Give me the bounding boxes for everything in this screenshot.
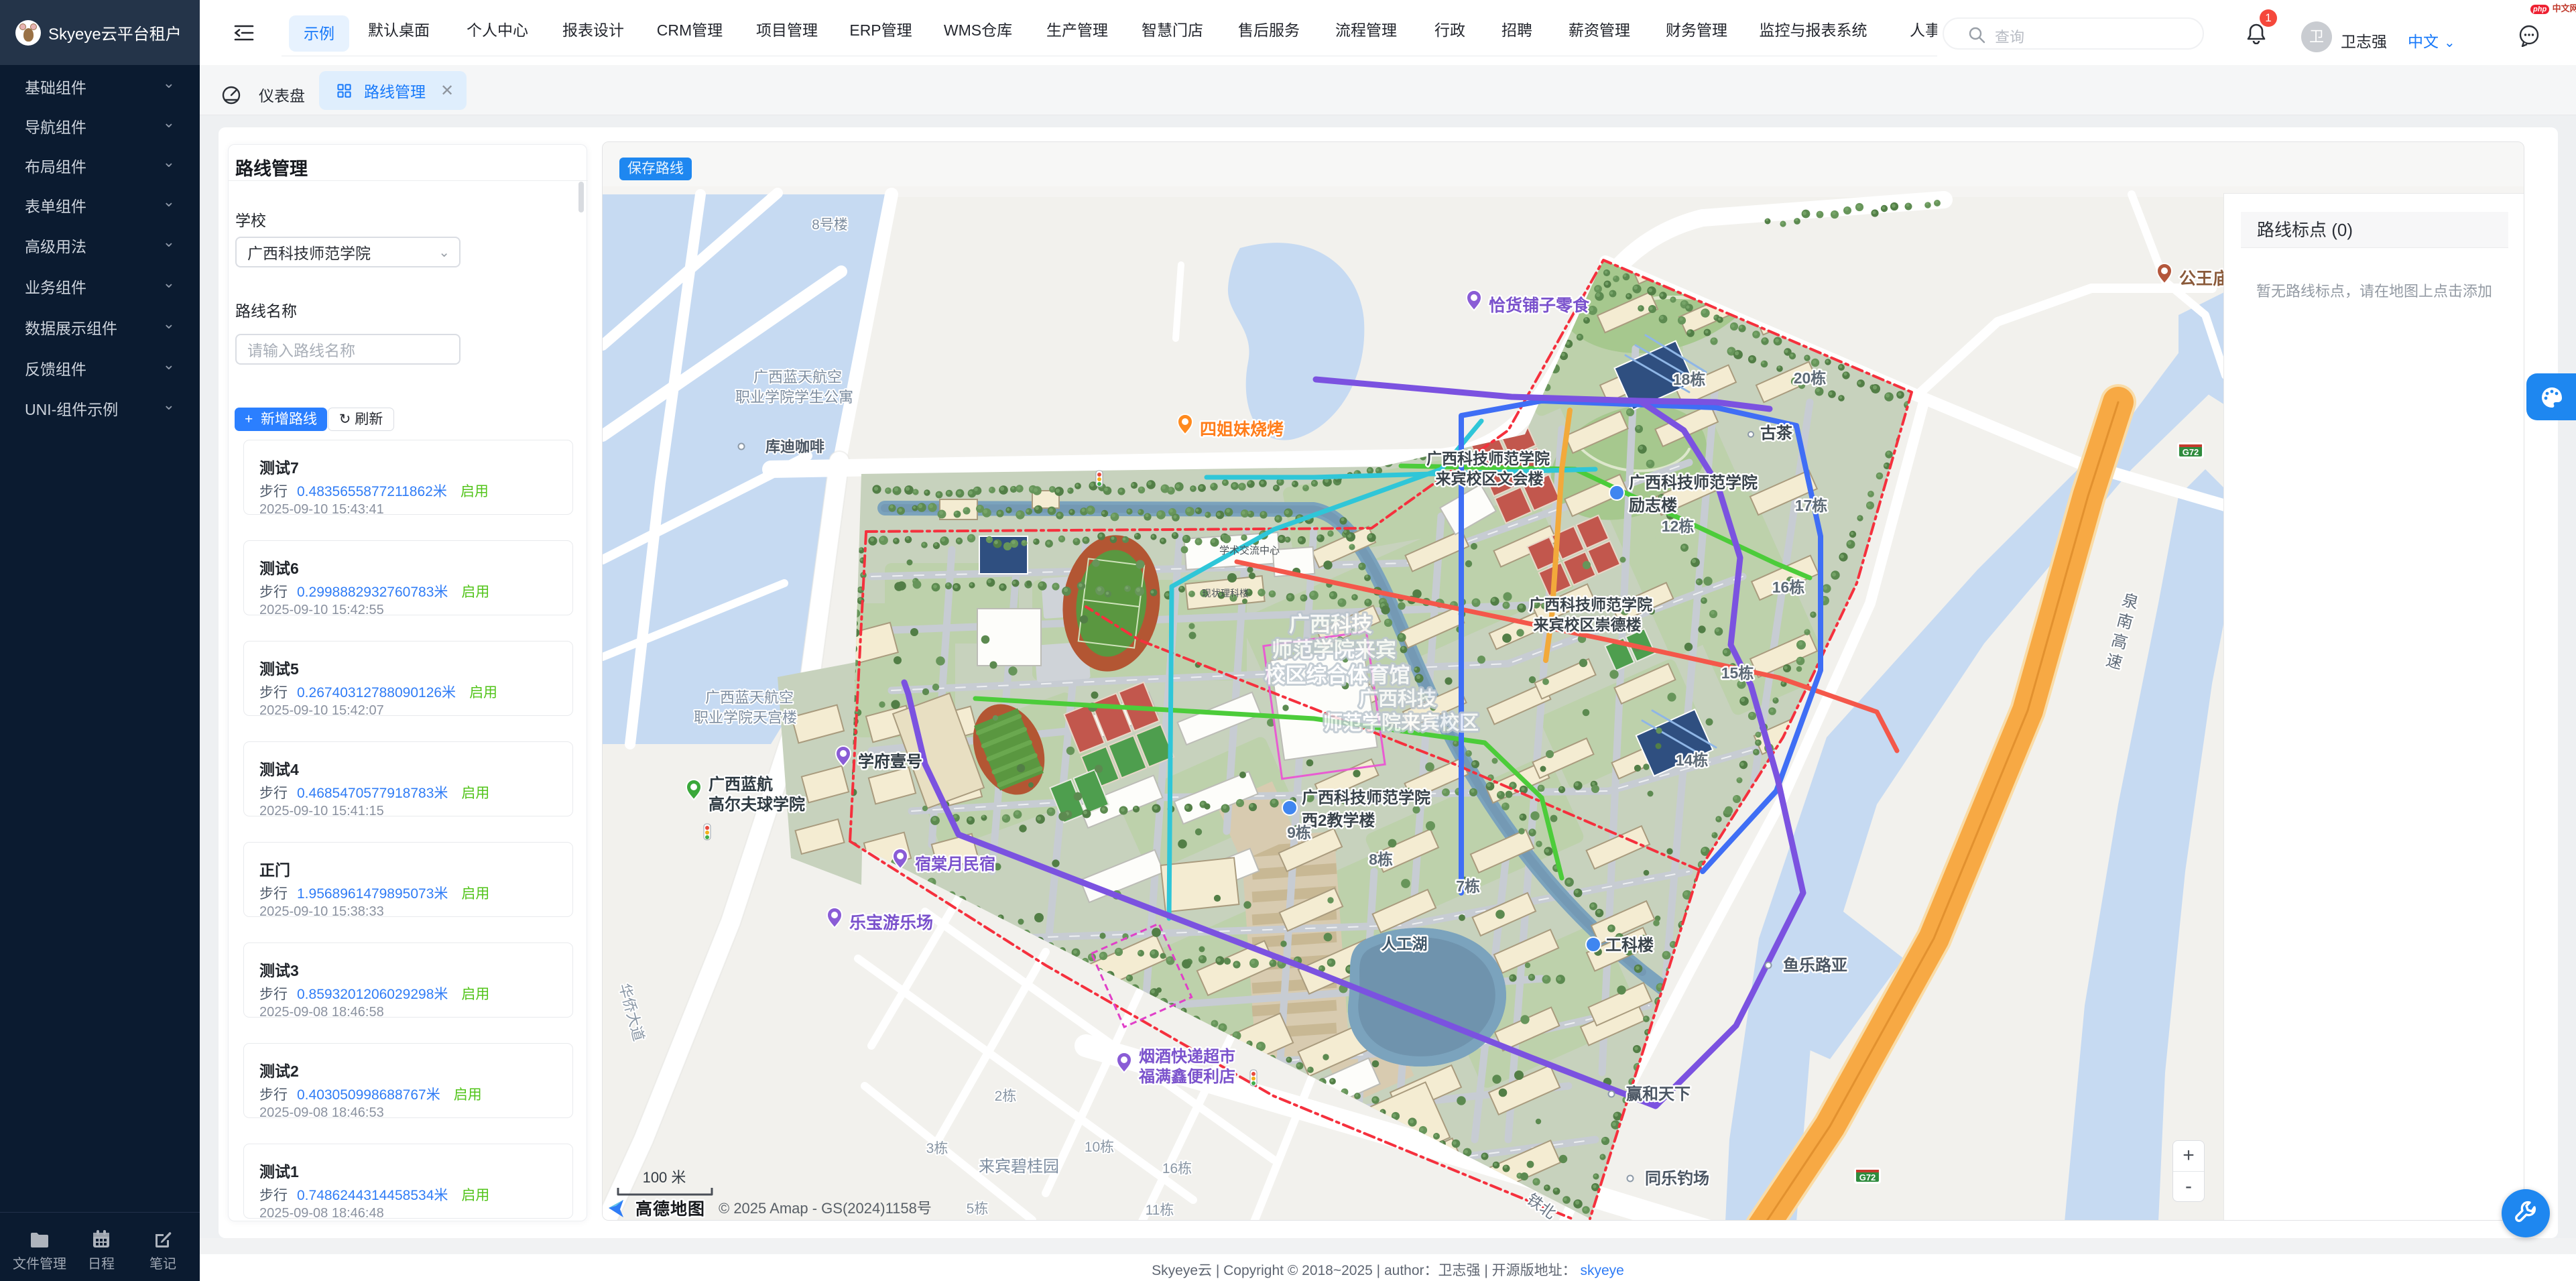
svg-text:广西科技师范学院: 广西科技师范学院: [1302, 788, 1430, 807]
svg-text:鱼乐路亚: 鱼乐路亚: [1783, 956, 1847, 975]
svg-text:2栋: 2栋: [995, 1089, 1017, 1104]
svg-text:学府壹号: 学府壹号: [858, 752, 922, 771]
svg-text:16栋: 16栋: [1162, 1161, 1192, 1176]
svg-text:15栋: 15栋: [1721, 664, 1754, 682]
svg-text:G72: G72: [1859, 1172, 1876, 1182]
svg-text:广西科技: 广西科技: [1359, 688, 1436, 710]
svg-text:9栋: 9栋: [1287, 824, 1311, 841]
svg-text:14栋: 14栋: [1676, 751, 1709, 769]
svg-text:10栋: 10栋: [1085, 1140, 1114, 1155]
svg-text:来宾碧桂园: 来宾碧桂园: [979, 1158, 1059, 1176]
svg-text:西2教学楼: 西2教学楼: [1302, 811, 1375, 830]
svg-text:7栋: 7栋: [1456, 877, 1480, 895]
svg-text:12栋: 12栋: [1662, 517, 1695, 535]
svg-text:烟酒快递超市: 烟酒快递超市: [1139, 1047, 1235, 1066]
svg-text:宿棠月民宿: 宿棠月民宿: [915, 855, 995, 873]
svg-text:师范学院来宾校区: 师范学院来宾校区: [1323, 711, 1479, 734]
svg-text:来宾校区文会楼: 来宾校区文会楼: [1436, 470, 1544, 487]
svg-text:20栋: 20栋: [1794, 369, 1827, 387]
svg-text:来宾校区崇德楼: 来宾校区崇德楼: [1534, 616, 1642, 633]
svg-text:8栋: 8栋: [1369, 851, 1393, 868]
svg-text:工科楼: 工科楼: [1605, 936, 1654, 955]
svg-text:库迪咖啡: 库迪咖啡: [765, 438, 824, 455]
svg-text:广西蓝航: 广西蓝航: [709, 775, 773, 794]
svg-text:5栋: 5栋: [967, 1201, 989, 1217]
svg-text:© 2025 Amap - GS(2024)1158号: © 2025 Amap - GS(2024)1158号: [719, 1200, 932, 1217]
svg-text:恰货铺子零食: 恰货铺子零食: [1489, 296, 1590, 315]
svg-text:高德地图: 高德地图: [635, 1199, 705, 1219]
svg-text:励志楼: 励志楼: [1629, 497, 1677, 515]
svg-text:广西科技: 广西科技: [1289, 613, 1372, 636]
svg-text:赢和天下: 赢和天下: [1626, 1085, 1691, 1103]
svg-text:高尔夫球学院: 高尔夫球学院: [709, 795, 805, 814]
svg-text:四姐妹烧烤: 四姐妹烧烤: [1200, 420, 1284, 439]
svg-text:11栋: 11栋: [1146, 1203, 1174, 1218]
svg-text:人工湖: 人工湖: [1382, 935, 1428, 953]
svg-text:广西科技师范学院: 广西科技师范学院: [1529, 596, 1652, 613]
svg-text:G72: G72: [2183, 447, 2199, 457]
svg-text:古茶: 古茶: [1760, 424, 1793, 442]
svg-text:校区综合体育馆: 校区综合体育馆: [1265, 664, 1410, 687]
svg-text:同乐钓场: 同乐钓场: [1645, 1170, 1709, 1188]
svg-text:乐宝游乐场: 乐宝游乐场: [849, 913, 933, 932]
svg-text:广西蓝天航空: 广西蓝天航空: [753, 369, 842, 385]
svg-text:8号楼: 8号楼: [812, 217, 848, 233]
svg-text:广西蓝天航空: 广西蓝天航空: [705, 689, 794, 706]
svg-text:16栋: 16栋: [1772, 578, 1805, 596]
svg-text:福满鑫便利店: 福满鑫便利店: [1138, 1067, 1235, 1086]
svg-text:广西科技师范学院: 广西科技师范学院: [1629, 473, 1758, 492]
svg-text:学术交流中心: 学术交流中心: [1219, 544, 1280, 556]
svg-text:师范学院来宾: 师范学院来宾: [1272, 638, 1396, 662]
svg-text:17栋: 17栋: [1795, 497, 1828, 514]
svg-text:职业学院天宫楼: 职业学院天宫楼: [694, 709, 797, 726]
svg-text:职业学院学生公寓: 职业学院学生公寓: [735, 389, 853, 406]
svg-text:3栋: 3栋: [926, 1141, 948, 1156]
svg-text:现状理科楼: 现状理科楼: [1202, 588, 1249, 599]
svg-text:广西科技师范学院: 广西科技师范学院: [1426, 450, 1550, 467]
svg-text:18栋: 18栋: [1673, 371, 1706, 388]
svg-text:公王庙: 公王庙: [2179, 269, 2229, 288]
svg-text:100 米: 100 米: [643, 1169, 686, 1186]
